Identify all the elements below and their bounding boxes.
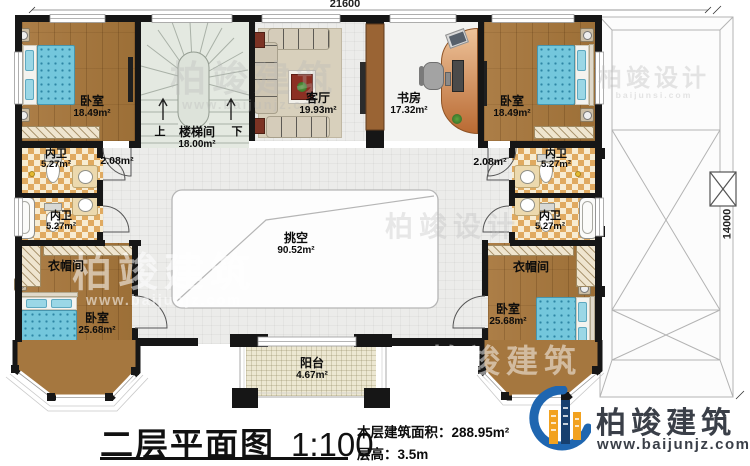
room-label-balcony: 阳台 4.67m²	[296, 357, 328, 382]
room-label-hall-r: 2.08m²	[473, 157, 506, 169]
stair-down-text: 下	[232, 126, 243, 138]
room-area: 19.93m²	[299, 105, 336, 116]
chimney	[710, 172, 736, 206]
plan-linework	[0, 0, 750, 466]
room-area: 18.00m²	[178, 139, 215, 150]
room-name: 卧室	[73, 95, 110, 108]
dim-top: 21600	[330, 0, 361, 10]
plan-info: 本层建筑面积：288.95m² 层高：3.5m	[357, 422, 509, 465]
room-area: 17.32m²	[390, 105, 427, 116]
room-label-cloak-r: 衣帽间	[513, 261, 549, 274]
stair-up-text: 上	[155, 126, 166, 138]
logo-buildings	[549, 400, 581, 444]
room-area: 4.67m²	[296, 370, 328, 381]
room-label-bath-l2: 内卫 5.27m²	[46, 210, 76, 233]
room-name: 卧室	[493, 95, 530, 108]
room-label-bedroom-tr: 卧室 18.49m²	[493, 95, 530, 120]
room-area: 2.08m²	[473, 157, 506, 169]
floor-area-value: 288.95m²	[452, 425, 510, 440]
bay-window-left	[6, 340, 148, 411]
room-name: 书房	[390, 92, 427, 105]
room-name: 衣帽间	[48, 260, 84, 273]
room-name: 阳台	[296, 357, 328, 370]
stair-down-label: 下	[232, 126, 243, 138]
room-area: 5.27m²	[41, 160, 71, 171]
room-label-void: 挑空 90.52m²	[277, 232, 314, 257]
floor-area-line: 本层建筑面积：288.95m²	[357, 422, 509, 444]
room-area: 2.08m²	[100, 156, 133, 168]
room-label-cloak-l: 衣帽间	[48, 260, 84, 273]
room-name: 卧室	[78, 312, 115, 325]
room-area: 5.27m²	[541, 160, 571, 171]
floor-height-line: 层高：3.5m	[357, 444, 509, 466]
room-name: 挑空	[277, 232, 314, 245]
title-underline	[100, 457, 348, 460]
room-name: 楼梯间	[178, 126, 215, 139]
room-label-hall-l: 2.08m²	[100, 156, 133, 168]
roof-plan	[600, 17, 733, 397]
room-area: 18.49m²	[73, 108, 110, 119]
brand-url: www.baijunjz.com	[597, 436, 750, 453]
floor-height-label: 层高：	[357, 447, 398, 462]
room-area: 25.68m²	[78, 325, 115, 336]
floor-plan-canvas: 卧室 18.49m² 上 楼梯间 18.00m² 下 客厅 19.93m² 书房…	[0, 0, 750, 466]
room-label-stairwell: 楼梯间 18.00m²	[178, 126, 215, 151]
room-name: 客厅	[299, 92, 336, 105]
room-label-bedroom-br: 卧室 25.68m²	[489, 303, 526, 328]
room-area: 18.49m²	[493, 108, 530, 119]
room-label-study: 书房 17.32m²	[390, 92, 427, 117]
room-area: 5.27m²	[46, 222, 76, 233]
tv-feature-wall	[366, 24, 384, 130]
brand-logo-icon	[527, 386, 591, 460]
room-name: 衣帽间	[513, 261, 549, 274]
floor-area-label: 本层建筑面积：	[357, 425, 452, 440]
room-label-living: 客厅 19.93m²	[299, 92, 336, 117]
room-area: 5.27m²	[535, 222, 565, 233]
dim-right: 14000	[721, 209, 733, 240]
room-label-bedroom-tl: 卧室 18.49m²	[73, 95, 110, 120]
room-label-bath-l1: 内卫 5.27m²	[41, 148, 71, 171]
room-area: 25.68m²	[489, 316, 526, 327]
room-area: 90.52m²	[277, 245, 314, 256]
room-label-bath-r2: 内卫 5.27m²	[535, 210, 565, 233]
stair-up-label: 上	[155, 126, 166, 138]
room-label-bedroom-bl: 卧室 25.68m²	[78, 312, 115, 337]
room-name: 卧室	[489, 303, 526, 316]
floor-height-value: 3.5m	[398, 447, 429, 462]
room-label-bath-r1: 内卫 5.27m²	[541, 148, 571, 171]
